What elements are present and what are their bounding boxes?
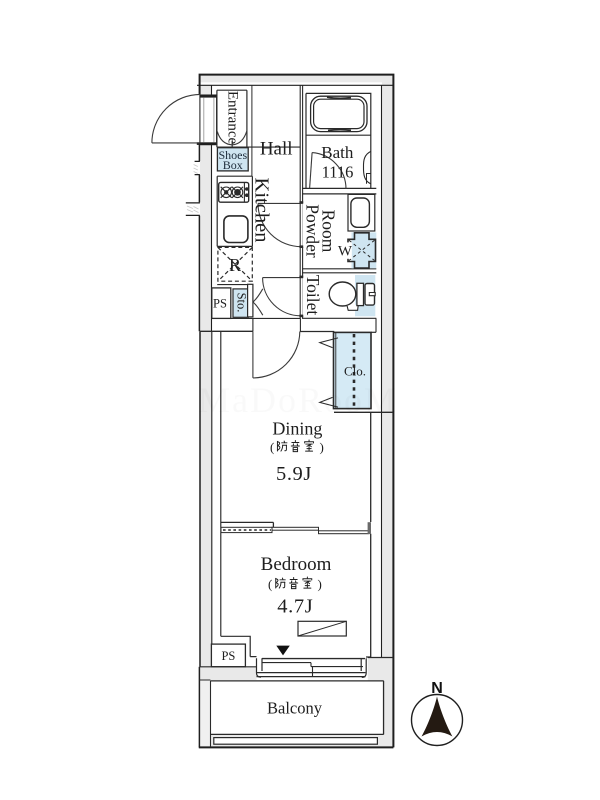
svg-text:): ) xyxy=(318,577,322,592)
svg-text:R: R xyxy=(229,255,241,275)
svg-text:N: N xyxy=(431,680,443,697)
svg-text:1116: 1116 xyxy=(322,163,354,182)
svg-text:(: ( xyxy=(268,577,272,592)
svg-text:4.7J: 4.7J xyxy=(277,596,313,618)
svg-text:Bedroom: Bedroom xyxy=(261,554,332,575)
svg-text:(: ( xyxy=(270,440,274,455)
svg-text:Hall: Hall xyxy=(260,139,293,160)
svg-text:PS: PS xyxy=(213,297,227,311)
svg-text:Entrance: Entrance xyxy=(224,91,240,145)
svg-text:Sto.: Sto. xyxy=(235,293,249,313)
svg-text:Box: Box xyxy=(223,158,243,172)
svg-text:Room: Room xyxy=(319,210,339,253)
svg-text:PS: PS xyxy=(221,649,235,663)
svg-text:5.9J: 5.9J xyxy=(276,463,312,485)
svg-text:Dining: Dining xyxy=(272,419,322,439)
svg-text:Balcony: Balcony xyxy=(267,699,323,718)
svg-text:Kitchen: Kitchen xyxy=(251,178,273,243)
svg-text:W: W xyxy=(338,244,353,260)
svg-text:Clo.: Clo. xyxy=(344,364,366,379)
svg-text:): ) xyxy=(320,440,324,455)
svg-text:Bath: Bath xyxy=(321,143,354,162)
svg-text:MaDoRooM: MaDoRooM xyxy=(198,380,398,420)
svg-text:Toilet: Toilet xyxy=(303,275,323,316)
